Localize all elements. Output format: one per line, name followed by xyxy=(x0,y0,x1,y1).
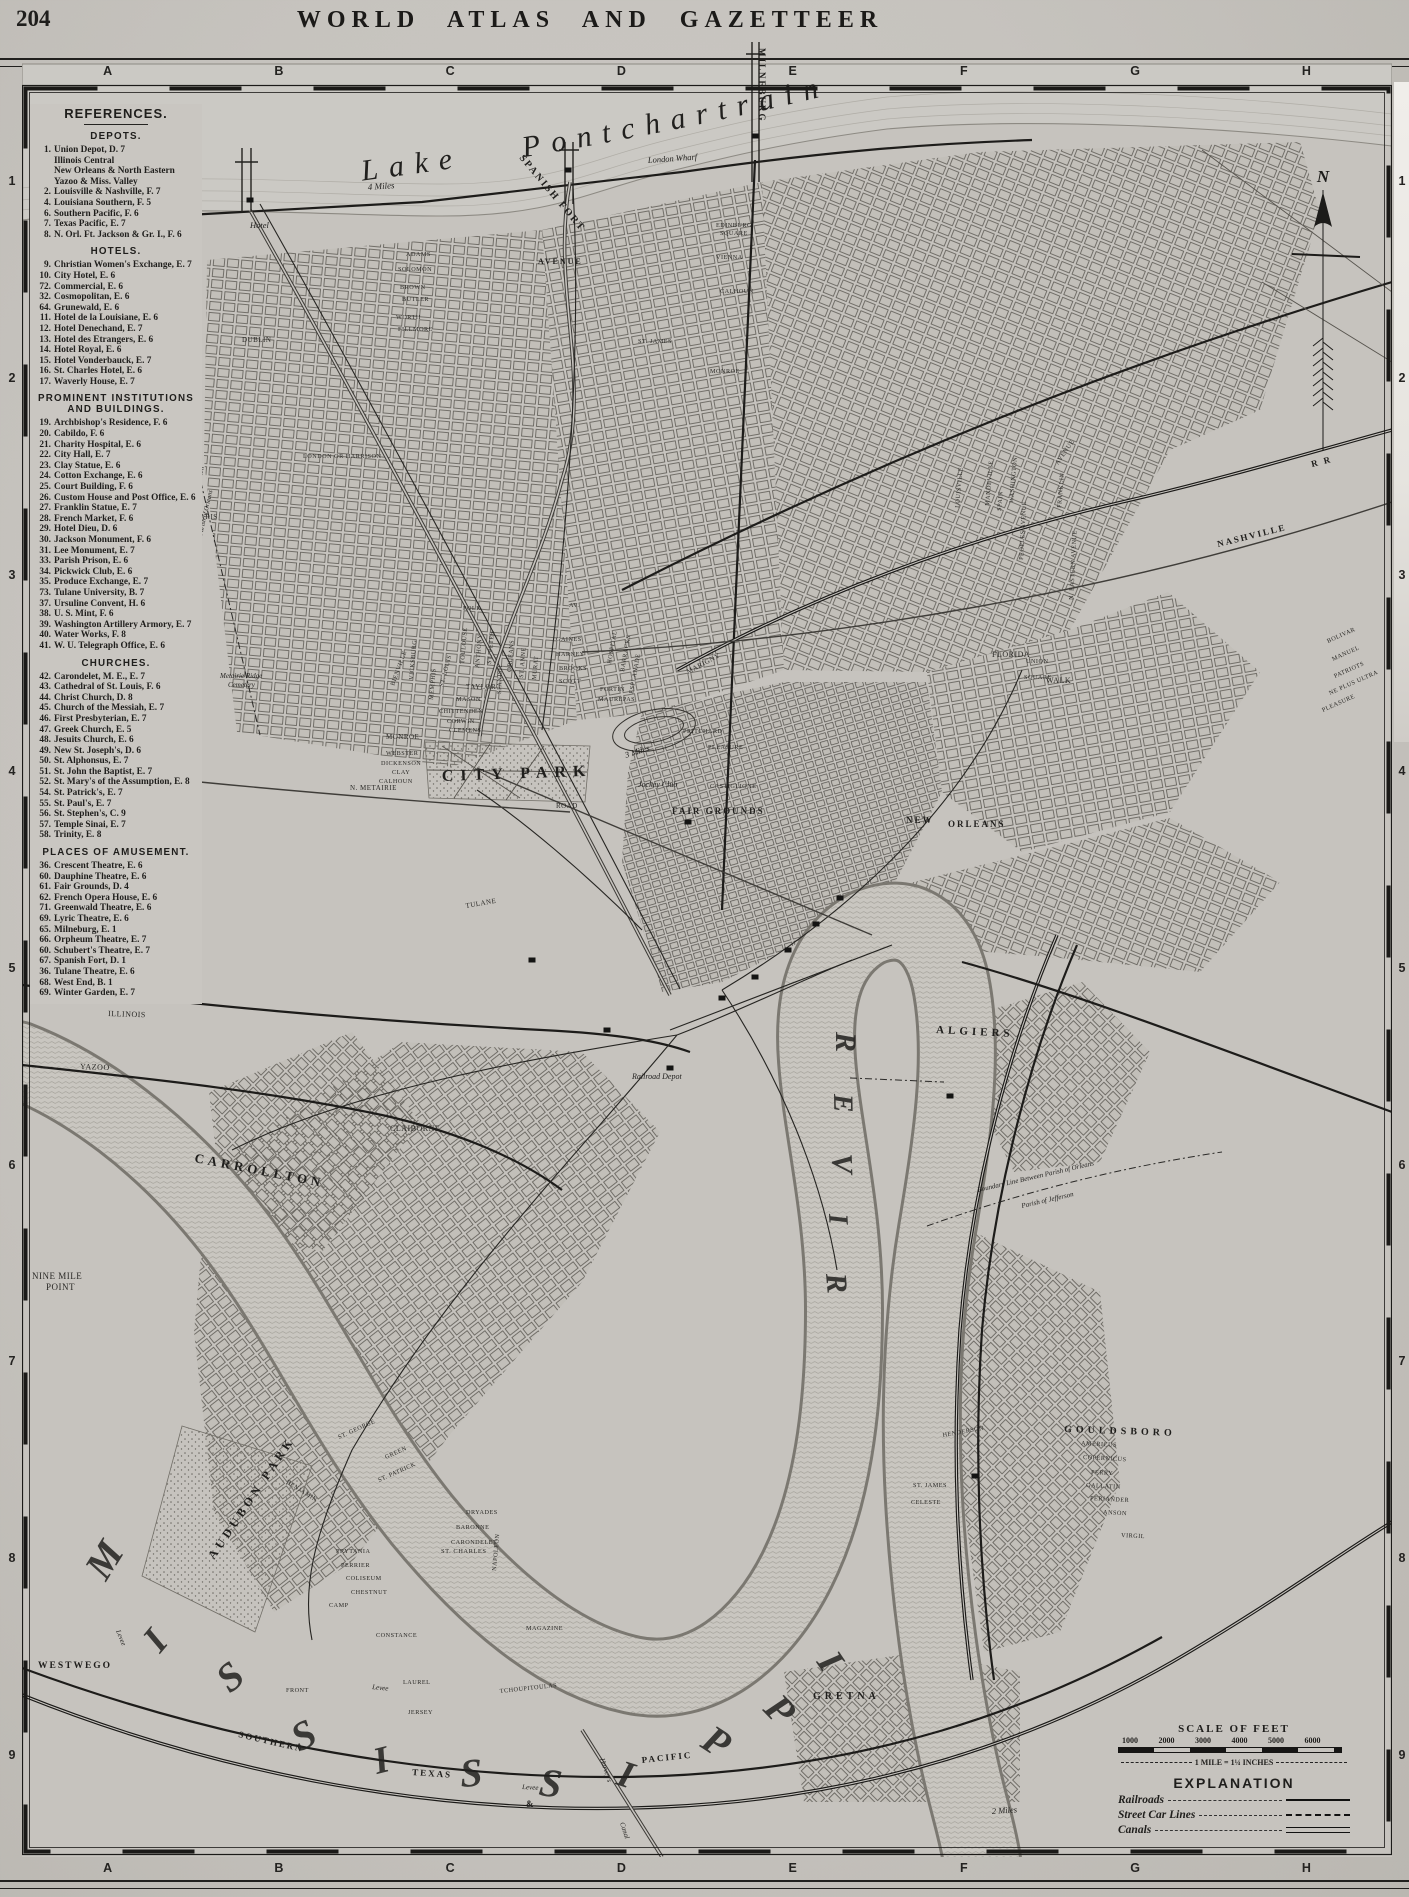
reference-number: 36. xyxy=(31,861,54,872)
reference-number: 67. xyxy=(31,956,54,967)
grid-column-label-top: C xyxy=(442,64,458,78)
reference-text: Hotel Dieu, D. 6 xyxy=(54,524,201,535)
map-label: N. METAIRIE xyxy=(350,784,397,792)
references-title: REFERENCES. xyxy=(31,106,201,125)
reference-number: 40. xyxy=(31,630,54,641)
reference-text: Waverly House, E. 7 xyxy=(54,377,201,388)
grid-column-label-bottom: F xyxy=(956,1861,972,1875)
map-canvas: Lake Pontchartrain MILNEBURGSPANISH FORT… xyxy=(22,30,1392,1857)
map-label: WESTWEGO xyxy=(38,1661,112,1671)
map-label: NEW xyxy=(906,815,934,825)
reference-text: Lee Monument, E. 7 xyxy=(54,546,201,557)
reference-item: 40.Water Works, F. 8 xyxy=(31,630,201,641)
building-marker xyxy=(565,168,572,173)
reference-item: 9.Christian Women's Exchange, E. 7 xyxy=(31,260,201,271)
reference-number: 30. xyxy=(31,535,54,546)
compass-north-label: N xyxy=(1316,167,1330,186)
grid-row-label-left: 9 xyxy=(4,1748,20,1762)
map-label: ROAD xyxy=(556,802,578,810)
reference-item: 57.Temple Sinai, E. 7 xyxy=(31,820,201,831)
reference-number: 25. xyxy=(31,482,54,493)
reference-text: Milneburg, E. 1 xyxy=(54,925,201,936)
reference-number: 7. xyxy=(31,219,54,230)
map-label: S xyxy=(458,1750,483,1796)
reference-number: 13. xyxy=(31,335,54,346)
map-label: CHITTENDEN xyxy=(439,708,483,715)
reference-item: .New Orleans & North Eastern xyxy=(31,166,201,177)
reference-number: 2. xyxy=(31,187,54,198)
reference-item: 52.St. Mary's of the Assumption, E. 8 xyxy=(31,777,201,788)
building-marker xyxy=(529,958,536,963)
map-label: WEBSTER xyxy=(386,750,419,757)
map-label: Railroad Depot xyxy=(631,1072,682,1081)
map-label: PERRIER xyxy=(341,1562,370,1569)
reference-item: 50.St. Alphonsus, E. 7 xyxy=(31,756,201,767)
reference-text: St. Mary's of the Assumption, E. 8 xyxy=(54,777,201,788)
reference-item: 69.Winter Garden, E. 7 xyxy=(31,988,201,999)
grid-column-label-bottom: G xyxy=(1127,1861,1143,1875)
map-label: FORTIN xyxy=(600,686,625,693)
reference-item: 34.Pickwick Club, E. 6 xyxy=(31,567,201,578)
reference-item: 28.French Market, F. 6 xyxy=(31,514,201,525)
reference-text: Christ Church, D. 8 xyxy=(54,693,201,704)
building-marker xyxy=(719,996,726,1001)
map-label: ST. JAMES xyxy=(913,1482,947,1489)
reference-text: Hotel Denechand, E. 7 xyxy=(54,324,201,335)
reference-text: Cosmopolitan, E. 6 xyxy=(54,292,201,303)
reference-number: 68. xyxy=(31,978,54,989)
grid-row-label-right: 2 xyxy=(1394,371,1409,385)
grid-row-label-left: 7 xyxy=(4,1354,20,1368)
building-marker xyxy=(837,896,844,901)
map-label: CLAY xyxy=(392,769,410,776)
map-label: Levee xyxy=(521,1783,539,1792)
grid-column-label-top: B xyxy=(271,64,287,78)
reference-item: 39.Washington Artillery Armory, E. 7 xyxy=(31,620,201,631)
building-marker xyxy=(752,134,759,139)
explanation-label: Canals xyxy=(1118,1824,1151,1836)
reference-text: Christian Women's Exchange, E. 7 xyxy=(54,260,201,271)
map-label: CLEMENS xyxy=(449,727,481,734)
map-label: VIENNA xyxy=(716,254,743,261)
reference-text: Yazoo & Miss. Valley xyxy=(54,177,201,188)
map-label: CLAIBORNE xyxy=(390,1124,440,1133)
reference-text: Archbishop's Residence, F. 6 xyxy=(54,418,201,429)
reference-number: 57. xyxy=(31,820,54,831)
scale-tick-label: 3000 xyxy=(1195,1736,1211,1745)
scale-tick-label: 2000 xyxy=(1159,1736,1175,1745)
reference-text: Spanish Fort, D. 1 xyxy=(54,956,201,967)
map-label: PRITCHARD xyxy=(683,728,723,735)
reference-text: Ursuline Convent, H. 6 xyxy=(54,599,201,610)
reference-number: 1. xyxy=(31,145,54,156)
map-label: CORWIN xyxy=(447,718,475,725)
reference-number: 23. xyxy=(31,461,54,472)
reference-item: 64.Grunewald, E. 6 xyxy=(31,303,201,314)
reference-item: 48.Jesuits Church, E. 6 xyxy=(31,735,201,746)
reference-number: 56. xyxy=(31,809,54,820)
reference-number: 12. xyxy=(31,324,54,335)
reference-item: 33.Parish Prison, E. 6 xyxy=(31,556,201,567)
map-label: DUBLIN xyxy=(242,336,271,344)
reference-number: 69. xyxy=(31,914,54,925)
reference-item: 58.Trinity, E. 8 xyxy=(31,830,201,841)
map-label: 2 Miles xyxy=(991,1804,1018,1816)
reference-text: Court Building, F. 6 xyxy=(54,482,201,493)
reference-item: 10.City Hotel, E. 6 xyxy=(31,271,201,282)
reference-text: Crescent Theatre, E. 6 xyxy=(54,861,201,872)
explanation-line-sample xyxy=(1286,1799,1350,1801)
grid-column-label-bottom: H xyxy=(1298,1861,1314,1875)
reference-text: Lyric Theatre, E. 6 xyxy=(54,914,201,925)
building-marker xyxy=(667,1066,674,1071)
reference-text: Water Works, F. 8 xyxy=(54,630,201,641)
map-label: SQUARE xyxy=(720,230,748,237)
reference-item: 38.U. S. Mint, F. 6 xyxy=(31,609,201,620)
map-label: MONROE xyxy=(710,368,740,375)
map-label: ST. JAMES xyxy=(638,338,672,345)
explanation-row: Railroads xyxy=(1118,1794,1350,1806)
map-label: CONSTANCE xyxy=(376,1632,417,1639)
reference-text: Cotton Exchange, E. 6 xyxy=(54,471,201,482)
grid-column-label-bottom: B xyxy=(271,1861,287,1875)
reference-text: Greenwald Theatre, E. 6 xyxy=(54,903,201,914)
grid-column-label-top: F xyxy=(956,64,972,78)
building-marker xyxy=(813,922,820,927)
map-label: Metairie Ridge xyxy=(219,672,262,680)
map-label: ADAMS xyxy=(406,251,431,258)
reference-number: 33. xyxy=(31,556,54,567)
map-label: MAUREPAS xyxy=(598,696,635,703)
grid-column-label-top: E xyxy=(785,64,801,78)
map-label: 4 Miles xyxy=(367,180,395,192)
grid-column-label-top: G xyxy=(1127,64,1143,78)
reference-item: 66.Orpheum Theatre, E. 7 xyxy=(31,935,201,946)
reference-item: 2.Louisville & Nashville, F. 7 xyxy=(31,187,201,198)
reference-item: 31.Lee Monument, E. 7 xyxy=(31,546,201,557)
explanation-label: Railroads xyxy=(1118,1794,1164,1806)
reference-text: Produce Exchange, E. 7 xyxy=(54,577,201,588)
reference-number: 36. xyxy=(31,967,54,978)
reference-number: 27. xyxy=(31,503,54,514)
explanation-leader xyxy=(1199,1815,1282,1816)
reference-text: New Orleans & North Eastern xyxy=(54,166,201,177)
map-label: ST. CHARLES xyxy=(441,1548,486,1555)
reference-item: 45.Church of the Messiah, E. 7 xyxy=(31,703,201,714)
reference-item: 14.Hotel Royal, E. 6 xyxy=(31,345,201,356)
reference-number: 60. xyxy=(31,946,54,957)
building-marker xyxy=(247,198,254,203)
map-label: CALHOUN xyxy=(379,778,413,785)
reference-item: 51.St. John the Baptist, E. 7 xyxy=(31,767,201,778)
reference-number: 69. xyxy=(31,988,54,999)
grid-row-label-right: 4 xyxy=(1394,764,1409,778)
reference-number: 32. xyxy=(31,292,54,303)
map-label: DICKENSON xyxy=(381,760,421,767)
reference-text: Pickwick Club, E. 6 xyxy=(54,567,201,578)
scale-bar-rule xyxy=(1118,1747,1342,1753)
map-label: Cemetery xyxy=(228,681,256,689)
reference-text: Jesuits Church, E. 6 xyxy=(54,735,201,746)
map-label: VIRGIL xyxy=(1121,1532,1145,1540)
reference-text: Commercial, E. 6 xyxy=(54,282,201,293)
references-section-heading: CHURCHES. xyxy=(37,658,195,669)
reference-number: 19. xyxy=(31,418,54,429)
reference-text: Cathedral of St. Louis, F. 6 xyxy=(54,682,201,693)
reference-item: 32.Cosmopolitan, E. 6 xyxy=(31,292,201,303)
legend: SCALE OF FEET 100020003000400050006000 1… xyxy=(1118,1723,1350,1836)
map-label: FAIR GROUNDS xyxy=(672,806,765,816)
reference-number: 72. xyxy=(31,282,54,293)
reference-number: 29. xyxy=(31,524,54,535)
building-marker xyxy=(972,1474,979,1479)
reference-text: Greek Church, E. 5 xyxy=(54,725,201,736)
reference-item: 15.Hotel Vonderbauck, E. 7 xyxy=(31,356,201,367)
reference-text: Trinity, E. 8 xyxy=(54,830,201,841)
reference-item: 73.Tulane University, B. 7 xyxy=(31,588,201,599)
reference-item: 60.Dauphine Theatre, E. 6 xyxy=(31,872,201,883)
reference-text: Tulane Theatre, E. 6 xyxy=(54,967,201,978)
reference-text: Hotel Royal, E. 6 xyxy=(54,345,201,356)
scale-tick-label: 6000 xyxy=(1305,1736,1321,1745)
grid-row-label-left: 8 xyxy=(4,1551,20,1565)
map-label: BUTLER xyxy=(402,296,429,303)
map-label: SPANISH xyxy=(496,665,504,694)
reference-number: 11. xyxy=(31,313,54,324)
map-label: R xyxy=(829,1031,862,1052)
map-label: CHESTNUT xyxy=(351,1589,387,1596)
reference-number: 65. xyxy=(31,925,54,936)
reference-number: 14. xyxy=(31,345,54,356)
reference-text: First Presbyterian, E. 7 xyxy=(54,714,201,725)
reference-item: 62.French Opera House, E. 6 xyxy=(31,893,201,904)
reference-item: 68.West End, B. 1 xyxy=(31,978,201,989)
map-label: AV. xyxy=(569,602,579,609)
reference-item: 16.St. Charles Hotel, E. 6 xyxy=(31,366,201,377)
map-label: EDINBURG xyxy=(716,222,752,229)
grid-column-label-top: H xyxy=(1298,64,1314,78)
reference-text: U. S. Mint, F. 6 xyxy=(54,609,201,620)
reference-number: 4. xyxy=(31,198,54,209)
footer-rule xyxy=(0,1880,1409,1889)
map-label: GRETNA xyxy=(813,1691,880,1702)
reference-item: 60.Schubert's Theatre, E. 7 xyxy=(31,946,201,957)
reference-text: French Market, F. 6 xyxy=(54,514,201,525)
reference-text: Union Depot, D. 7 xyxy=(54,145,201,156)
references-section-heading: HOTELS. xyxy=(37,246,195,257)
reference-text: Carondelet, M. E., E. 7 xyxy=(54,672,201,683)
reference-text: W. U. Telegraph Office, E. 6 xyxy=(54,641,201,652)
explanation-line-sample xyxy=(1286,1814,1350,1816)
reference-number: 61. xyxy=(31,882,54,893)
reference-item: 25.Court Building, F. 6 xyxy=(31,482,201,493)
reference-item: 65.Milneburg, E. 1 xyxy=(31,925,201,936)
grid-row-label-right: 9 xyxy=(1394,1748,1409,1762)
reference-item: 44.Christ Church, D. 8 xyxy=(31,693,201,704)
reference-item: 27.Franklin Statue, E. 7 xyxy=(31,503,201,514)
map-label: PERRY xyxy=(1091,1469,1113,1477)
reference-text: Louisiana Southern, F. 5 xyxy=(54,198,201,209)
building-marker xyxy=(947,1094,954,1099)
map-label: DRYADES xyxy=(466,1509,498,1516)
reference-text: St. John the Baptist, E. 7 xyxy=(54,767,201,778)
reference-number: 26. xyxy=(31,493,54,504)
reference-item: 37.Ursuline Convent, H. 6 xyxy=(31,599,201,610)
reference-item: 7.Texas Pacific, E. 7 xyxy=(31,219,201,230)
reference-text: N. Orl. Ft. Jackson & Gr. I., F. 6 xyxy=(54,230,201,241)
reference-number: 62. xyxy=(31,893,54,904)
reference-number: 52. xyxy=(31,777,54,788)
map-label: MONROE xyxy=(386,733,419,741)
reference-number: 50. xyxy=(31,756,54,767)
reference-item: 36.Tulane Theatre, E. 6 xyxy=(31,967,201,978)
reference-text: Hotel de la Louisiane, E. 6 xyxy=(54,313,201,324)
map-label: BARONNE xyxy=(456,1524,489,1531)
map-label: BROOKS xyxy=(559,665,587,672)
reference-item: 30.Jackson Monument, F. 6 xyxy=(31,535,201,546)
grid-column-label-bottom: E xyxy=(785,1861,801,1875)
reference-item: 56.St. Stephen's, C. 9 xyxy=(31,809,201,820)
reference-number: 38. xyxy=(31,609,54,620)
street-grid-block xyxy=(204,230,577,767)
reference-number: 20. xyxy=(31,429,54,440)
reference-text: Fair Grounds, D. 4 xyxy=(54,882,201,893)
scale-tick-label: 4000 xyxy=(1232,1736,1248,1745)
reference-text: Cabildo, F. 6 xyxy=(54,429,201,440)
reference-item: 12.Hotel Denechand, E. 7 xyxy=(31,324,201,335)
reference-item: 54.St. Patrick's, E. 7 xyxy=(31,788,201,799)
reference-number: 54. xyxy=(31,788,54,799)
reference-number: 46. xyxy=(31,714,54,725)
scale-mile-text: 1 MILE = 1¼ INCHES xyxy=(1195,1758,1274,1767)
reference-text: Charity Hospital, E. 6 xyxy=(54,440,201,451)
reference-item: 46.First Presbyterian, E. 7 xyxy=(31,714,201,725)
reference-item: 23.Clay Statue, E. 6 xyxy=(31,461,201,472)
map-label: & xyxy=(526,1799,536,1809)
map-label: SQUARE xyxy=(1024,674,1052,681)
reference-number: 71. xyxy=(31,903,54,914)
reference-number: 73. xyxy=(31,588,54,599)
reference-number: 28. xyxy=(31,514,54,525)
reference-number: 42. xyxy=(31,672,54,683)
references-sections: DEPOTS.1.Union Depot, D. 7.Illinois Cent… xyxy=(31,131,201,999)
reference-number: 31. xyxy=(31,546,54,557)
reference-item: 6.Southern Pacific, F. 6 xyxy=(31,209,201,220)
grid-row-label-right: 3 xyxy=(1394,568,1409,582)
map-label: FRONT xyxy=(286,1687,309,1694)
reference-item: 26.Custom House and Post Office, E. 6 xyxy=(31,493,201,504)
reference-item: 19.Archbishop's Residence, F. 6 xyxy=(31,418,201,429)
reference-number: 49. xyxy=(31,746,54,757)
reference-number: 24. xyxy=(31,471,54,482)
grid-row-label-left: 1 xyxy=(4,174,20,188)
grid-row-label-right: 1 xyxy=(1394,174,1409,188)
scale-tick-label: 1000 xyxy=(1122,1736,1138,1745)
explanation-row: Street Car Lines xyxy=(1118,1809,1350,1821)
reference-text: Custom House and Post Office, E. 6 xyxy=(54,493,201,504)
reference-item: 36.Crescent Theatre, E. 6 xyxy=(31,861,201,872)
scale-title: SCALE OF FEET xyxy=(1118,1723,1350,1735)
reference-item: 13.Hotel des Etrangers, E. 6 xyxy=(31,335,201,346)
references-panel: REFERENCES. DEPOTS.1.Union Depot, D. 7.I… xyxy=(30,104,202,1004)
explanation-label: Street Car Lines xyxy=(1118,1809,1195,1821)
grid-row-label-right: 6 xyxy=(1394,1158,1409,1172)
reference-text: St. Alphonsus, E. 7 xyxy=(54,756,201,767)
scale-tick-label: 5000 xyxy=(1268,1736,1284,1745)
references-section-heading: DEPOTS. xyxy=(37,131,195,142)
reference-text: Franklin Statue, E. 7 xyxy=(54,503,201,514)
scale-bar: 100020003000400050006000 xyxy=(1118,1736,1350,1756)
reference-text: St. Paul's, E. 7 xyxy=(54,799,201,810)
map-label: AVENUE xyxy=(538,257,583,266)
map-label: BROWN xyxy=(400,284,426,291)
reference-text: City Hall, E. 7 xyxy=(54,450,201,461)
grid-row-label-left: 5 xyxy=(4,961,20,975)
reference-number: 43. xyxy=(31,682,54,693)
map-label: LONDON OR HARRISON xyxy=(303,453,381,460)
reference-text: Southern Pacific, F. 6 xyxy=(54,209,201,220)
reference-item: 17.Waverly House, E. 7 xyxy=(31,377,201,388)
reference-item: 21.Charity Hospital, E. 6 xyxy=(31,440,201,451)
reference-text: St. Charles Hotel, E. 6 xyxy=(54,366,201,377)
reference-number: 66. xyxy=(31,935,54,946)
grid-row-label-right: 5 xyxy=(1394,961,1409,975)
reference-number: 60. xyxy=(31,872,54,883)
reference-number: 16. xyxy=(31,366,54,377)
grid-row-label-right: 7 xyxy=(1394,1354,1409,1368)
building-marker xyxy=(752,975,759,980)
reference-number: 34. xyxy=(31,567,54,578)
reference-number: 45. xyxy=(31,703,54,714)
reference-number: 58. xyxy=(31,830,54,841)
reference-item: 1.Union Depot, D. 7 xyxy=(31,145,201,156)
reference-item: 49.New St. Joseph's, D. 6 xyxy=(31,746,201,757)
reference-number: 9. xyxy=(31,260,54,271)
reference-item: 71.Greenwald Theatre, E. 6 xyxy=(31,903,201,914)
reference-number: 37. xyxy=(31,599,54,610)
reference-text: Clay Statue, E. 6 xyxy=(54,461,201,472)
explanation-leader xyxy=(1155,1830,1282,1831)
map-label: FLORIDA xyxy=(992,650,1030,659)
reference-text: French Opera House, E. 6 xyxy=(54,893,201,904)
map-label: HARNEY xyxy=(556,651,585,658)
scale-dash xyxy=(1276,1762,1347,1763)
map-label: PLEASURE xyxy=(708,744,743,751)
reference-item: 55.St. Paul's, E. 7 xyxy=(31,799,201,810)
map-label: E xyxy=(827,1093,858,1113)
explanation-line-sample xyxy=(1286,1827,1350,1833)
reference-text: City Hotel, E. 6 xyxy=(54,271,201,282)
reference-item: .Yazoo & Miss. Valley xyxy=(31,177,201,188)
map-label: CAMP xyxy=(329,1602,349,1609)
map-label: COLISEUM xyxy=(346,1575,382,1582)
reference-item: 43.Cathedral of St. Louis, F. 6 xyxy=(31,682,201,693)
map-label: R xyxy=(819,1271,854,1295)
reference-text: Washington Artillery Armory, E. 7 xyxy=(54,620,201,631)
explanation-title: EXPLANATION xyxy=(1118,1775,1350,1791)
map-label: CARONDELET xyxy=(451,1539,497,1546)
map-label: Jockey Club xyxy=(638,780,677,789)
map-label: TAYLOR xyxy=(466,683,496,691)
map-label: NINE MILE xyxy=(32,1271,82,1281)
grid-row-label-left: 3 xyxy=(4,568,20,582)
grid-row-label-left: 4 xyxy=(4,764,20,778)
reference-item: 72.Commercial, E. 6 xyxy=(31,282,201,293)
grid-column-label-bottom: D xyxy=(613,1861,629,1875)
reference-text: Hotel Vonderbauck, E. 7 xyxy=(54,356,201,367)
reference-text: Orpheum Theatre, E. 7 xyxy=(54,935,201,946)
reference-text: Jackson Monument, F. 6 xyxy=(54,535,201,546)
